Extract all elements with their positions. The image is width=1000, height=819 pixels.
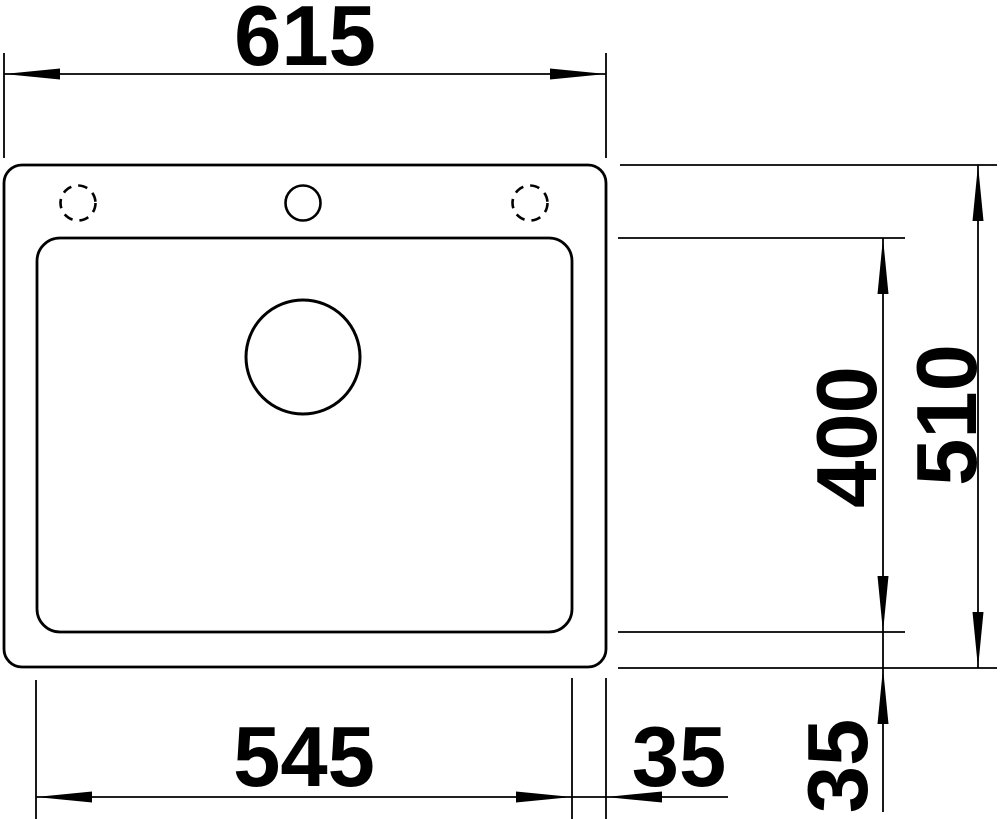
dim-bowl-width-value: 545	[233, 710, 375, 805]
drain-hole	[246, 300, 360, 414]
dim-overall-depth-value: 510	[900, 344, 995, 486]
dim-overall-width-value: 615	[234, 0, 376, 84]
arrow-up-icon	[973, 165, 984, 221]
dim-bottom-offset-value: 35	[791, 719, 886, 814]
arrow-right-icon	[550, 69, 606, 80]
arrow-up-icon	[878, 668, 889, 724]
faucet-hole-center	[286, 186, 321, 221]
sink-bowl-outline	[37, 238, 572, 632]
arrow-left-icon	[36, 792, 92, 803]
dim-overall-width: 615	[4, 0, 606, 158]
sink-dimension-drawing: 615 545 35 400 35	[0, 0, 1000, 819]
arrow-down-icon	[878, 576, 889, 632]
arrow-left-icon	[4, 69, 60, 80]
arrow-up-icon	[878, 238, 889, 294]
dim-bowl-width-and-right-offset: 545 35	[36, 678, 728, 819]
drawing-canvas: 615 545 35 400 35	[0, 0, 1000, 819]
sink-plan-view	[4, 165, 606, 667]
sink-outer-outline	[4, 165, 606, 667]
dim-bowl-depth-value: 400	[800, 366, 895, 508]
arrow-right-icon	[516, 792, 572, 803]
dim-right-offset-value: 35	[632, 710, 727, 805]
faucet-hole-left-dashed	[61, 186, 96, 221]
arrow-down-icon	[973, 612, 984, 668]
faucet-hole-right-dashed	[513, 186, 548, 221]
